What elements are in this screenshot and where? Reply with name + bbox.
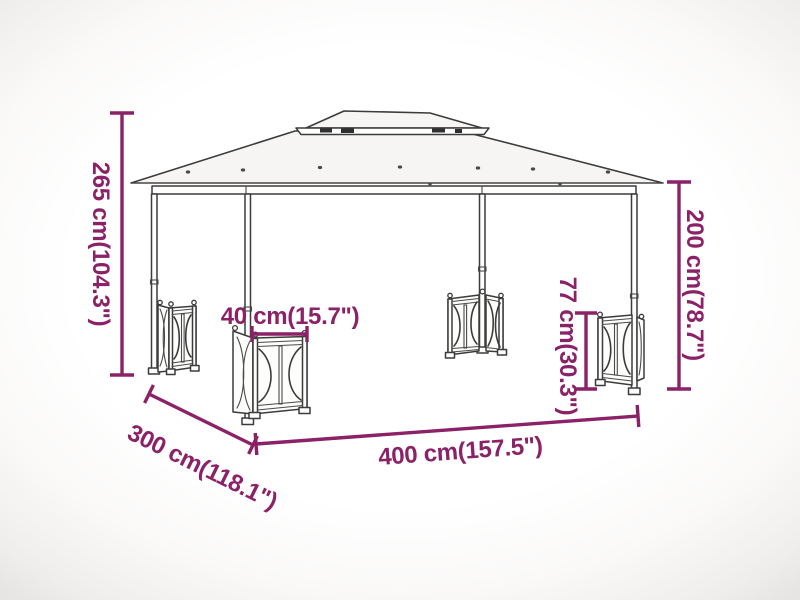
dim-label-total-height: 265 cm(104.3") bbox=[87, 162, 114, 327]
gazebo-main-roof bbox=[131, 131, 663, 185]
dimension-panel-height: 77 cm(30.3") bbox=[554, 277, 597, 416]
dim-label-depth: 300 cm(118.1") bbox=[123, 419, 281, 515]
dimension-total-height: 265 cm(104.3") bbox=[87, 113, 134, 375]
top-roof-canopy bbox=[306, 111, 482, 128]
dim-label-length: 400 cm(157.5") bbox=[377, 432, 543, 471]
main-roof-canopy bbox=[131, 131, 663, 183]
dim-label-panel-width: 40 cm(15.7") bbox=[221, 303, 360, 330]
gazebo-top-vent-roof bbox=[296, 111, 489, 135]
sidewall-panel-front-right bbox=[596, 312, 645, 385]
sidewall-panel-front-left bbox=[233, 326, 310, 419]
dim-label-side-height: 200 cm(78.7") bbox=[681, 209, 708, 361]
sidewall-panel-back-left bbox=[158, 300, 199, 374]
gazebo-drawing bbox=[131, 111, 663, 425]
sidewall-panel-back-right bbox=[446, 289, 507, 358]
dim-cap-400-right bbox=[637, 405, 639, 427]
dim-label-panel-height: 77 cm(30.3") bbox=[554, 277, 581, 416]
frieze-band bbox=[152, 186, 636, 194]
product-dimension-diagram: 265 cm(104.3") 200 cm(78.7") 77 cm(30.3"… bbox=[0, 0, 800, 600]
gazebo-diagram-canvas: 265 cm(104.3") 200 cm(78.7") 77 cm(30.3"… bbox=[0, 0, 800, 600]
eave-frieze-beam bbox=[152, 186, 636, 194]
dimension-side-height: 200 cm(78.7") bbox=[667, 182, 708, 389]
